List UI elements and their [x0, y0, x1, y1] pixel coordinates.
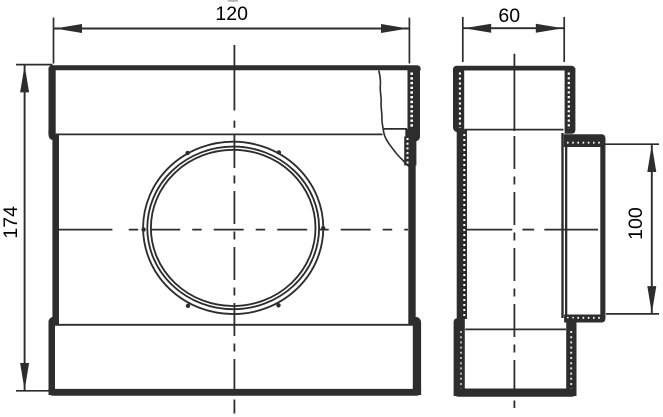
svg-text:60: 60: [498, 5, 520, 27]
svg-text:174: 174: [0, 206, 22, 239]
svg-text:100: 100: [625, 207, 647, 240]
svg-text:120: 120: [215, 3, 248, 25]
